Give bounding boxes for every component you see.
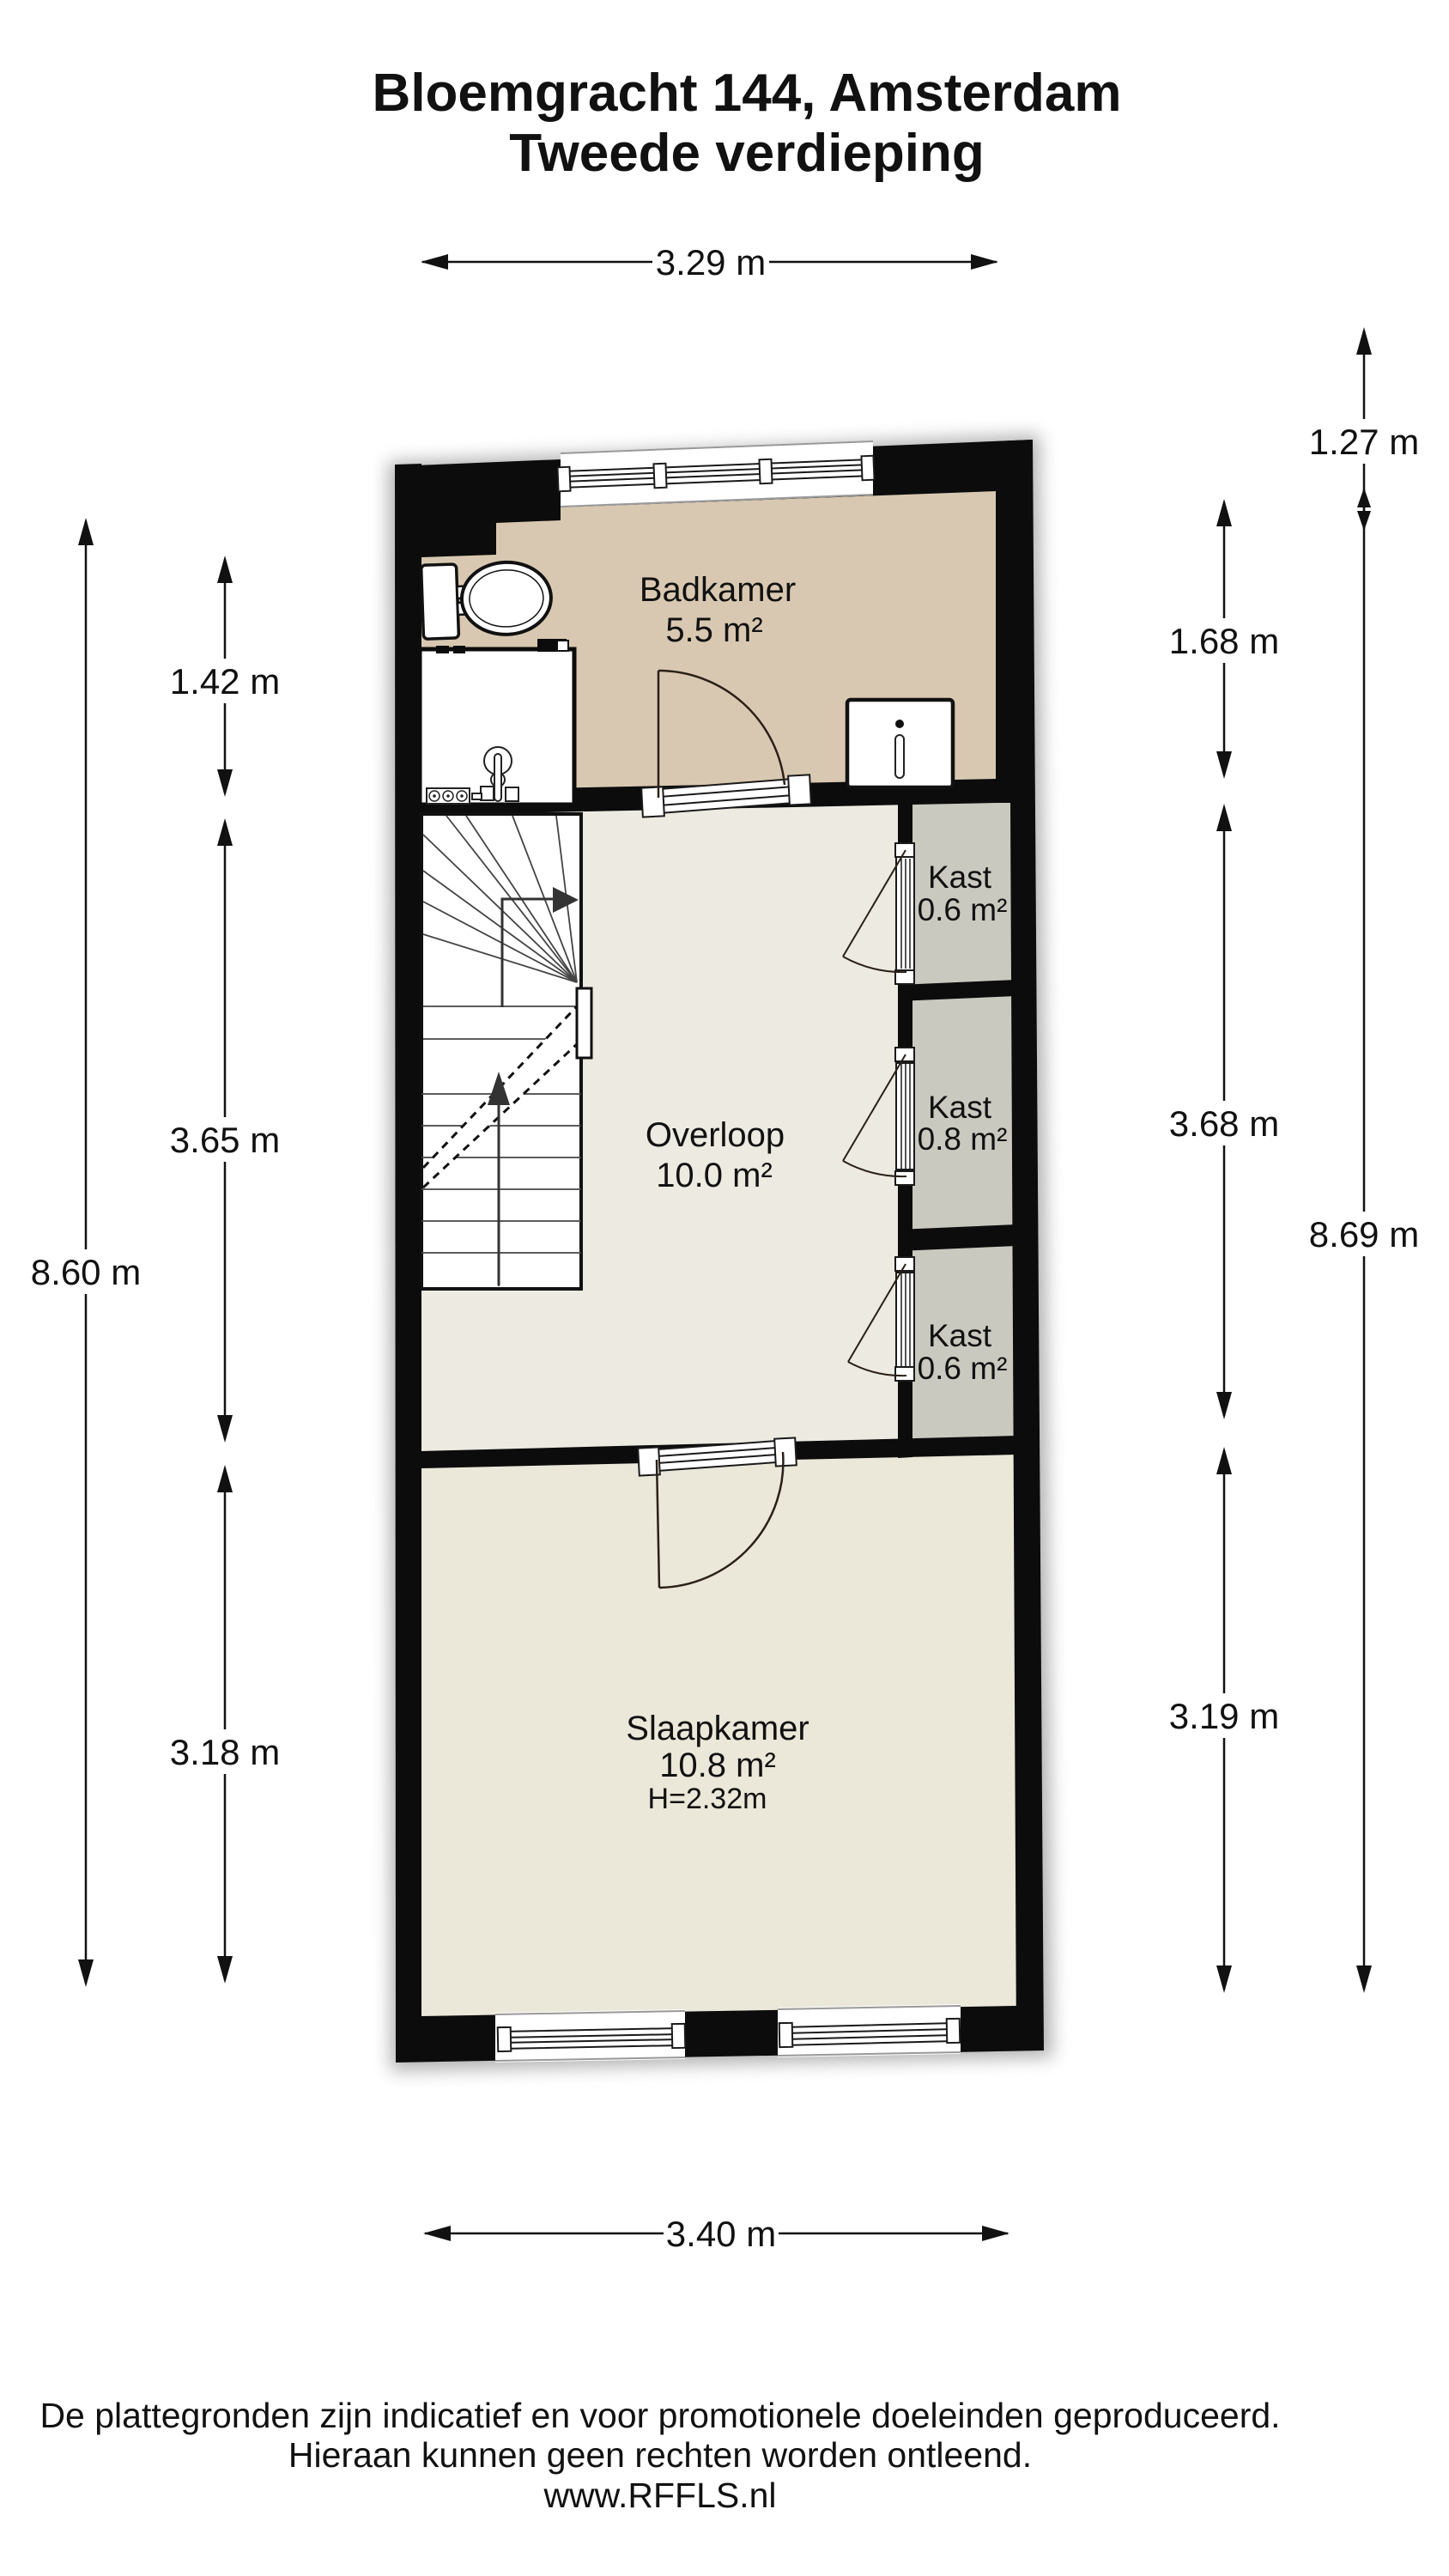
svg-text:0.6 m²: 0.6 m² (918, 892, 1008, 927)
svg-text:De plattegronden zijn indicati: De plattegronden zijn indicatief en voor… (39, 2396, 1280, 2435)
svg-text:3.18 m: 3.18 m (170, 1732, 280, 1772)
svg-text:0.6 m²: 0.6 m² (918, 1351, 1008, 1386)
svg-text:H=2.32m: H=2.32m (648, 1783, 767, 1815)
svg-text:Kast: Kast (928, 860, 992, 895)
svg-text:3.40 m: 3.40 m (666, 2214, 776, 2254)
svg-text:5.5 m²: 5.5 m² (665, 611, 762, 649)
svg-text:www.RFFLS.nl: www.RFFLS.nl (543, 2476, 776, 2515)
svg-text:3.68 m: 3.68 m (1169, 1103, 1279, 1144)
svg-text:1.42 m: 1.42 m (170, 661, 280, 702)
svg-text:10.0 m²: 10.0 m² (656, 1157, 773, 1194)
svg-text:Kast: Kast (928, 1090, 992, 1125)
svg-text:3.29 m: 3.29 m (656, 242, 766, 283)
svg-text:8.60 m: 8.60 m (31, 1252, 141, 1292)
svg-text:Kast: Kast (928, 1318, 992, 1353)
svg-text:0.8 m²: 0.8 m² (918, 1121, 1008, 1157)
svg-text:Slaapkamer: Slaapkamer (626, 1710, 809, 1747)
svg-text:Hieraan kunnen geen rechten wo: Hieraan kunnen geen rechten worden ontle… (288, 2435, 1032, 2475)
svg-text:10.8 m²: 10.8 m² (659, 1747, 776, 1784)
svg-text:Tweede verdieping: Tweede verdieping (509, 124, 985, 183)
svg-text:3.19 m: 3.19 m (1169, 1696, 1279, 1736)
svg-text:Bloemgracht 144, Amsterdam: Bloemgracht 144, Amsterdam (373, 64, 1122, 123)
svg-text:Badkamer: Badkamer (640, 571, 796, 609)
svg-text:Overloop: Overloop (646, 1116, 785, 1154)
svg-text:1.68 m: 1.68 m (1169, 621, 1279, 661)
svg-text:1.27 m: 1.27 m (1309, 422, 1419, 462)
svg-text:3.65 m: 3.65 m (170, 1120, 280, 1160)
svg-text:8.69 m: 8.69 m (1309, 1214, 1419, 1255)
